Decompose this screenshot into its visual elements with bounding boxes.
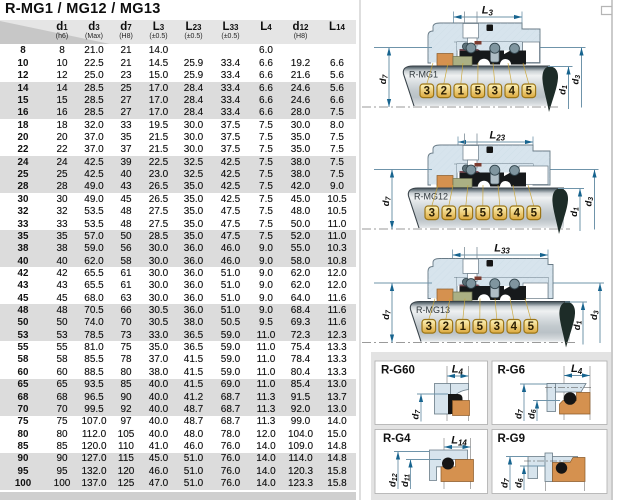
svg-text:3: 3 bbox=[429, 208, 435, 220]
svg-text:R-G6: R-G6 bbox=[498, 365, 525, 377]
svg-text:3: 3 bbox=[494, 321, 500, 333]
svg-text:R-MG12: R-MG12 bbox=[414, 192, 448, 202]
svg-text:2: 2 bbox=[443, 321, 449, 333]
svg-text:L23: L23 bbox=[490, 130, 506, 143]
svg-text:L3: L3 bbox=[482, 5, 494, 18]
svg-text:d1: d1 bbox=[569, 207, 581, 217]
svg-text:1: 1 bbox=[463, 208, 470, 220]
svg-text:5: 5 bbox=[526, 86, 533, 98]
svg-text:4: 4 bbox=[511, 321, 518, 333]
svg-text:R-G60: R-G60 bbox=[381, 365, 415, 377]
svg-text:R-G4: R-G4 bbox=[383, 433, 411, 445]
svg-text:2: 2 bbox=[446, 208, 452, 220]
svg-text:3: 3 bbox=[426, 321, 432, 333]
svg-text:d3: d3 bbox=[571, 75, 583, 85]
svg-text:L33: L33 bbox=[494, 243, 510, 256]
svg-text:3: 3 bbox=[492, 86, 498, 98]
svg-text:3: 3 bbox=[424, 86, 430, 98]
svg-text:d1: d1 bbox=[558, 85, 570, 95]
svg-text:1: 1 bbox=[458, 86, 465, 98]
svg-text:5: 5 bbox=[480, 208, 487, 220]
svg-text:5: 5 bbox=[531, 208, 538, 220]
svg-text:4: 4 bbox=[514, 208, 521, 220]
svg-text:d3: d3 bbox=[589, 310, 601, 320]
svg-text:5: 5 bbox=[528, 321, 535, 333]
svg-text:4: 4 bbox=[509, 86, 516, 98]
svg-text:2: 2 bbox=[441, 86, 447, 98]
svg-text:5: 5 bbox=[475, 86, 482, 98]
svg-text:3: 3 bbox=[497, 208, 503, 220]
svg-text:d7: d7 bbox=[381, 309, 393, 320]
svg-text:d1: d1 bbox=[572, 320, 584, 330]
svg-text:R-MG1: R-MG1 bbox=[409, 70, 438, 80]
svg-text:1: 1 bbox=[460, 321, 467, 333]
svg-text:5: 5 bbox=[477, 321, 484, 333]
svg-text:R-G9: R-G9 bbox=[498, 433, 525, 445]
svg-text:d7: d7 bbox=[381, 195, 393, 206]
svg-text:R-MG13: R-MG13 bbox=[416, 305, 450, 315]
svg-text:d3: d3 bbox=[584, 197, 596, 207]
svg-text:d7: d7 bbox=[378, 73, 390, 84]
